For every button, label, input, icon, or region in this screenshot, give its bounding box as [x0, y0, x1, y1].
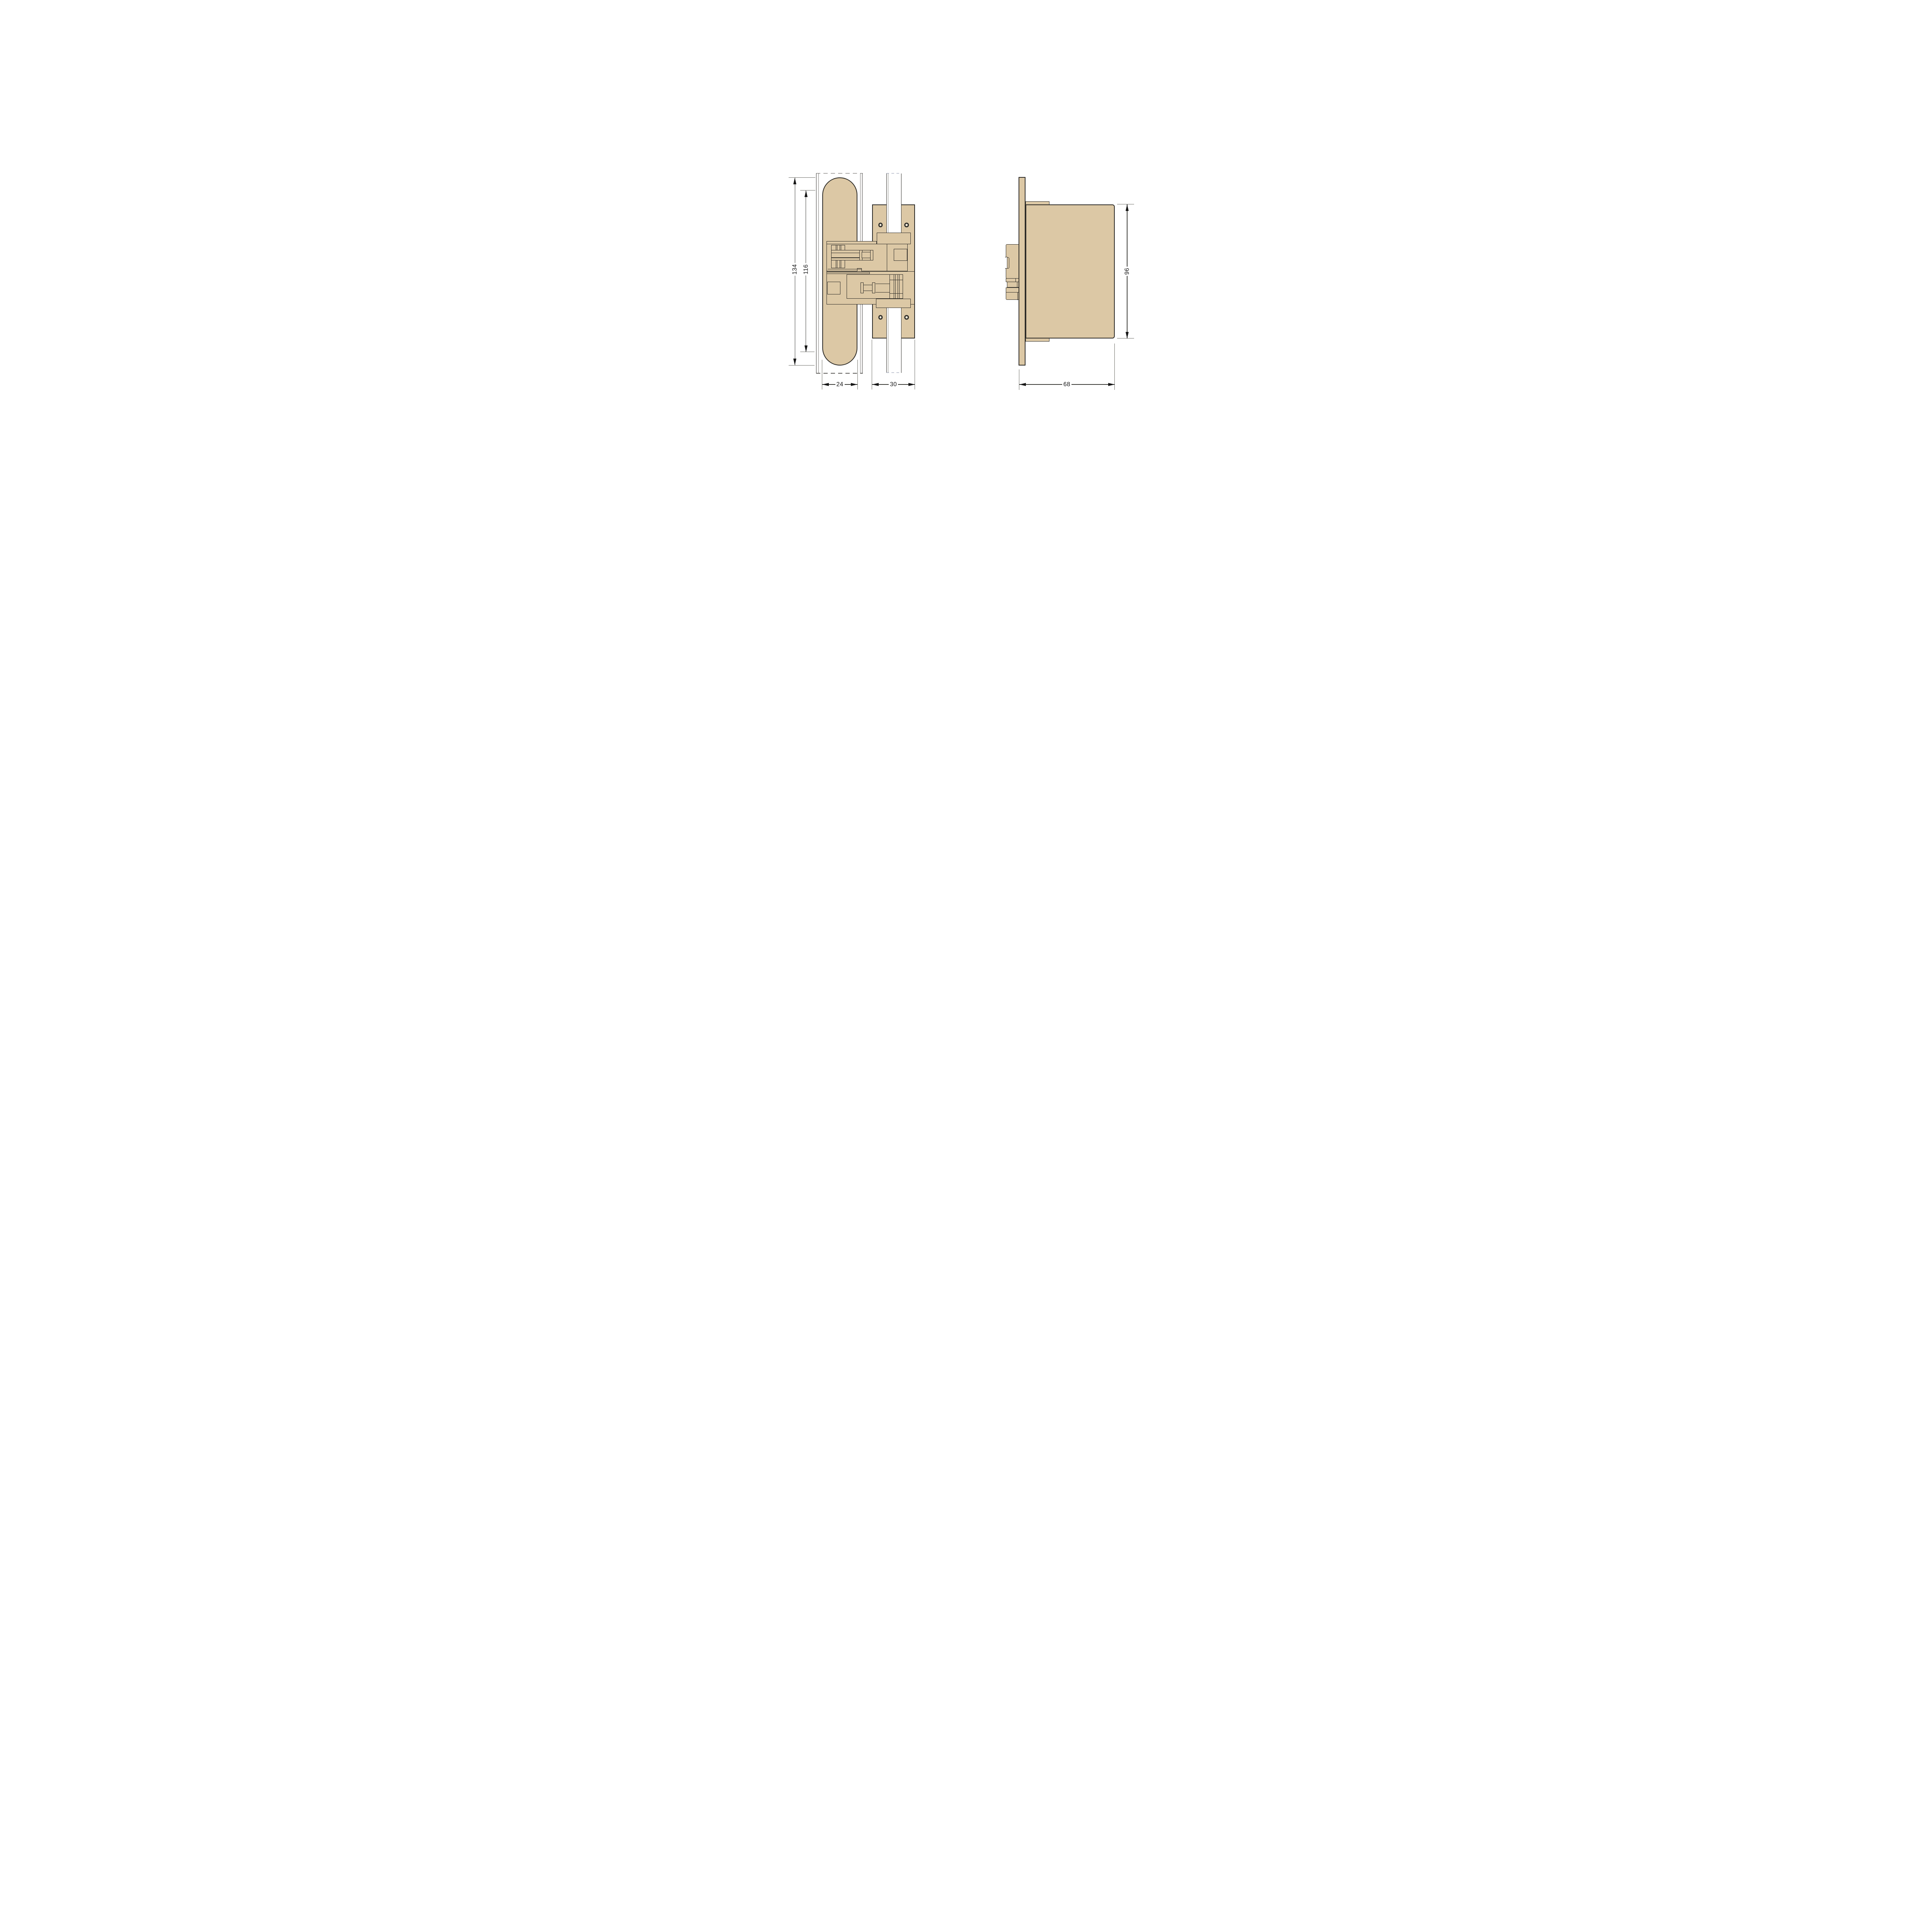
side-mech-bottom-block [1006, 287, 1020, 300]
mech-lower-pivot-bone [861, 282, 875, 293]
dim-30-ext-left [872, 340, 872, 389]
mech-bottom-sub-housing [876, 299, 910, 308]
dim-96-label: 96 [1124, 267, 1131, 276]
screw-hole [878, 223, 883, 228]
mech-top-sub-housing [877, 233, 911, 244]
side-mech-mid-block [1007, 282, 1020, 287]
side-mortise-box [1026, 204, 1115, 339]
dim-68-label: 68 [1062, 381, 1071, 388]
mech-upper-pivot-bone [859, 250, 873, 260]
arrow-right-icon [851, 383, 857, 386]
mech-upper-inner-line [828, 269, 862, 269]
mech-lower-stripes-block [889, 274, 903, 299]
mech-lower-shelf [827, 272, 870, 274]
mech-lower-left-block [827, 282, 840, 294]
dim-116-ext-top [800, 190, 815, 190]
arrow-up-icon [1126, 204, 1129, 211]
arrow-right-icon [1108, 383, 1115, 386]
screw-hole [904, 315, 909, 320]
arrow-left-icon [1019, 383, 1026, 386]
dim-134-label: 134 [792, 263, 798, 276]
arrow-down-icon [793, 359, 796, 365]
dim-24-label: 24 [835, 381, 844, 388]
dim-134-ext-bottom [789, 365, 815, 366]
arrow-left-icon [822, 383, 829, 386]
technical-drawing-page: 134 116 24 30 96 [757, 0, 1175, 556]
screw-hole [878, 315, 883, 320]
dim-30-label: 30 [889, 381, 898, 388]
door-channel-bottom-dashed-edge [816, 373, 863, 374]
door-channel-top-dashed-edge [816, 173, 863, 174]
side-faceplate-strip [1019, 177, 1026, 366]
arrow-up-icon [804, 190, 808, 197]
dim-116-label: 116 [803, 263, 809, 276]
frame-stile-top-dashed-edge [886, 173, 901, 174]
arrow-down-icon [804, 345, 808, 352]
arrow-right-icon [908, 383, 915, 386]
dim-30-ext-right [915, 340, 915, 389]
screw-hole [904, 223, 909, 228]
dim-134-ext-top [789, 177, 816, 178]
arrow-down-icon [1126, 332, 1129, 338]
arrow-left-icon [872, 383, 879, 386]
arrow-up-icon [793, 178, 796, 184]
dim-68-ext-left [1019, 369, 1019, 390]
side-mech-slot-pin [1007, 257, 1009, 268]
door-channel-left-outer-line [816, 173, 816, 374]
frame-stile-bottom-dashed-edge [886, 372, 901, 373]
mech-upper-right-block [887, 244, 908, 271]
door-channel-left-inner-line [818, 173, 819, 374]
